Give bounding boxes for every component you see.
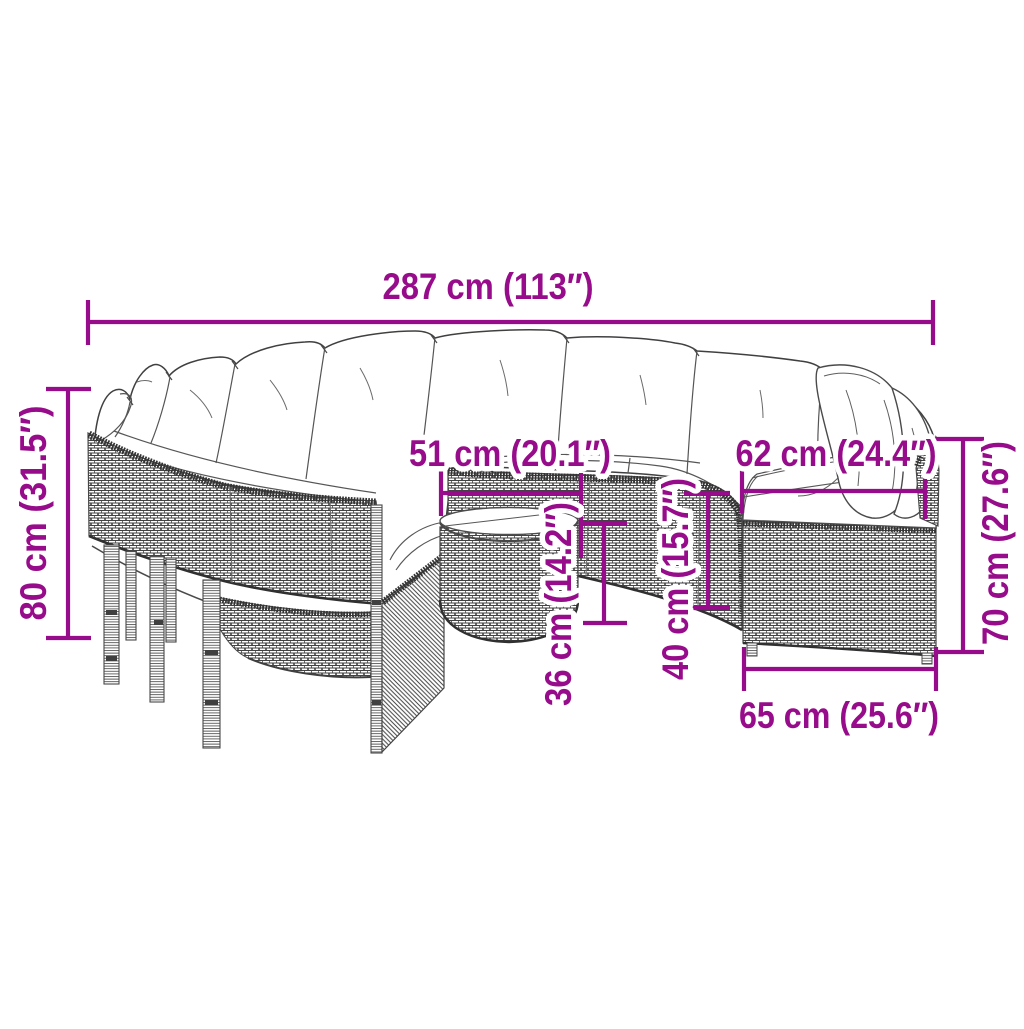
- svg-text:80 cm (31.5″): 80 cm (31.5″): [13, 406, 54, 621]
- svg-text:40 cm (15.7″): 40 cm (15.7″): [655, 478, 696, 680]
- svg-text:70 cm (27.6″): 70 cm (27.6″): [975, 441, 1016, 645]
- svg-text:51 cm (20.1″): 51 cm (20.1″): [409, 433, 611, 474]
- svg-text:65 cm (25.6″): 65 cm (25.6″): [739, 695, 939, 736]
- svg-text:287 cm (113″): 287 cm (113″): [383, 266, 594, 307]
- svg-text:62 cm (24.4″): 62 cm (24.4″): [736, 433, 937, 474]
- svg-text:36 cm (14.2″): 36 cm (14.2″): [538, 502, 579, 706]
